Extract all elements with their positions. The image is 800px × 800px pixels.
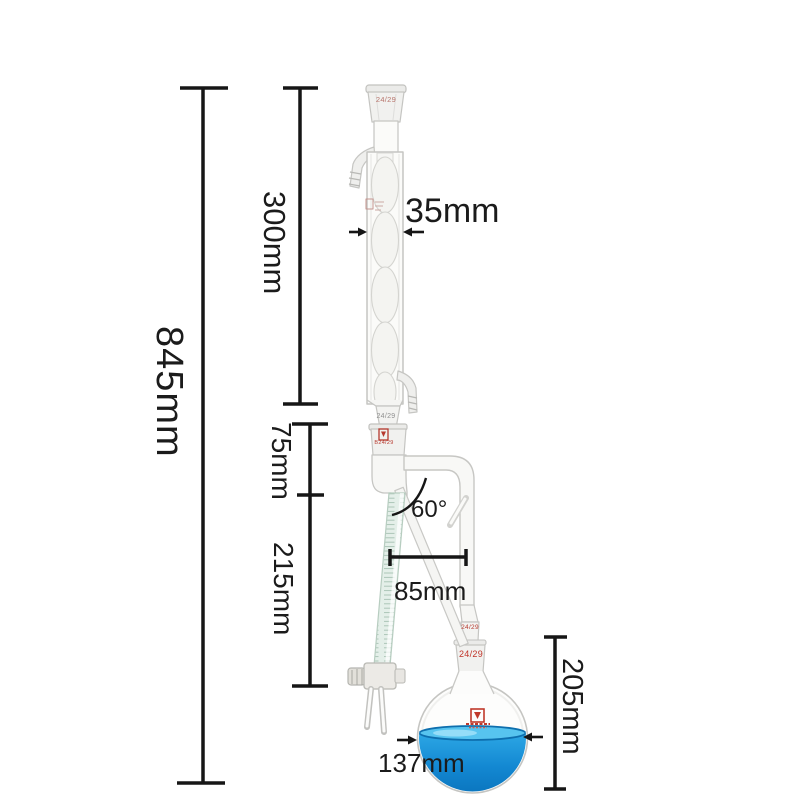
branch-width-label: 85mm xyxy=(394,578,466,604)
flask-neck xyxy=(450,671,494,694)
stopcock xyxy=(348,663,405,689)
receiver-socket-joint-label: B24/29 xyxy=(371,441,397,447)
outlet-tips xyxy=(367,689,384,732)
condenser-neck xyxy=(374,121,398,153)
flask-section-height-label: 205mm xyxy=(557,658,586,755)
stopcock-body xyxy=(364,663,396,689)
allihn-condenser xyxy=(349,85,417,428)
flask-socket-joint-label: 24/29 xyxy=(457,650,485,659)
condenser-width-label: 35mm xyxy=(405,194,499,228)
product-image: 845mm 300mm 35mm 75mm 215mm 60° 85mm 205… xyxy=(0,0,800,800)
apparatus-drawing xyxy=(0,0,800,800)
overall-height-label: 845mm xyxy=(150,326,188,458)
receiver-tube-label: 215mm xyxy=(269,542,297,635)
flask-cone-joint-label: 24/29 xyxy=(459,625,481,632)
condenser-bottom-joint-label: 24/29 xyxy=(374,413,398,420)
branch-angle-label: 60° xyxy=(411,498,447,522)
condenser-top-joint-label: 24/29 xyxy=(372,96,400,104)
stopcock-tip xyxy=(395,669,405,683)
flask-diameter-label: 137mm xyxy=(378,750,465,776)
condenser-length-label: 300mm xyxy=(259,191,290,294)
graduated-tube-assembly xyxy=(348,493,405,732)
adapter-section-label: 75mm xyxy=(267,422,295,500)
